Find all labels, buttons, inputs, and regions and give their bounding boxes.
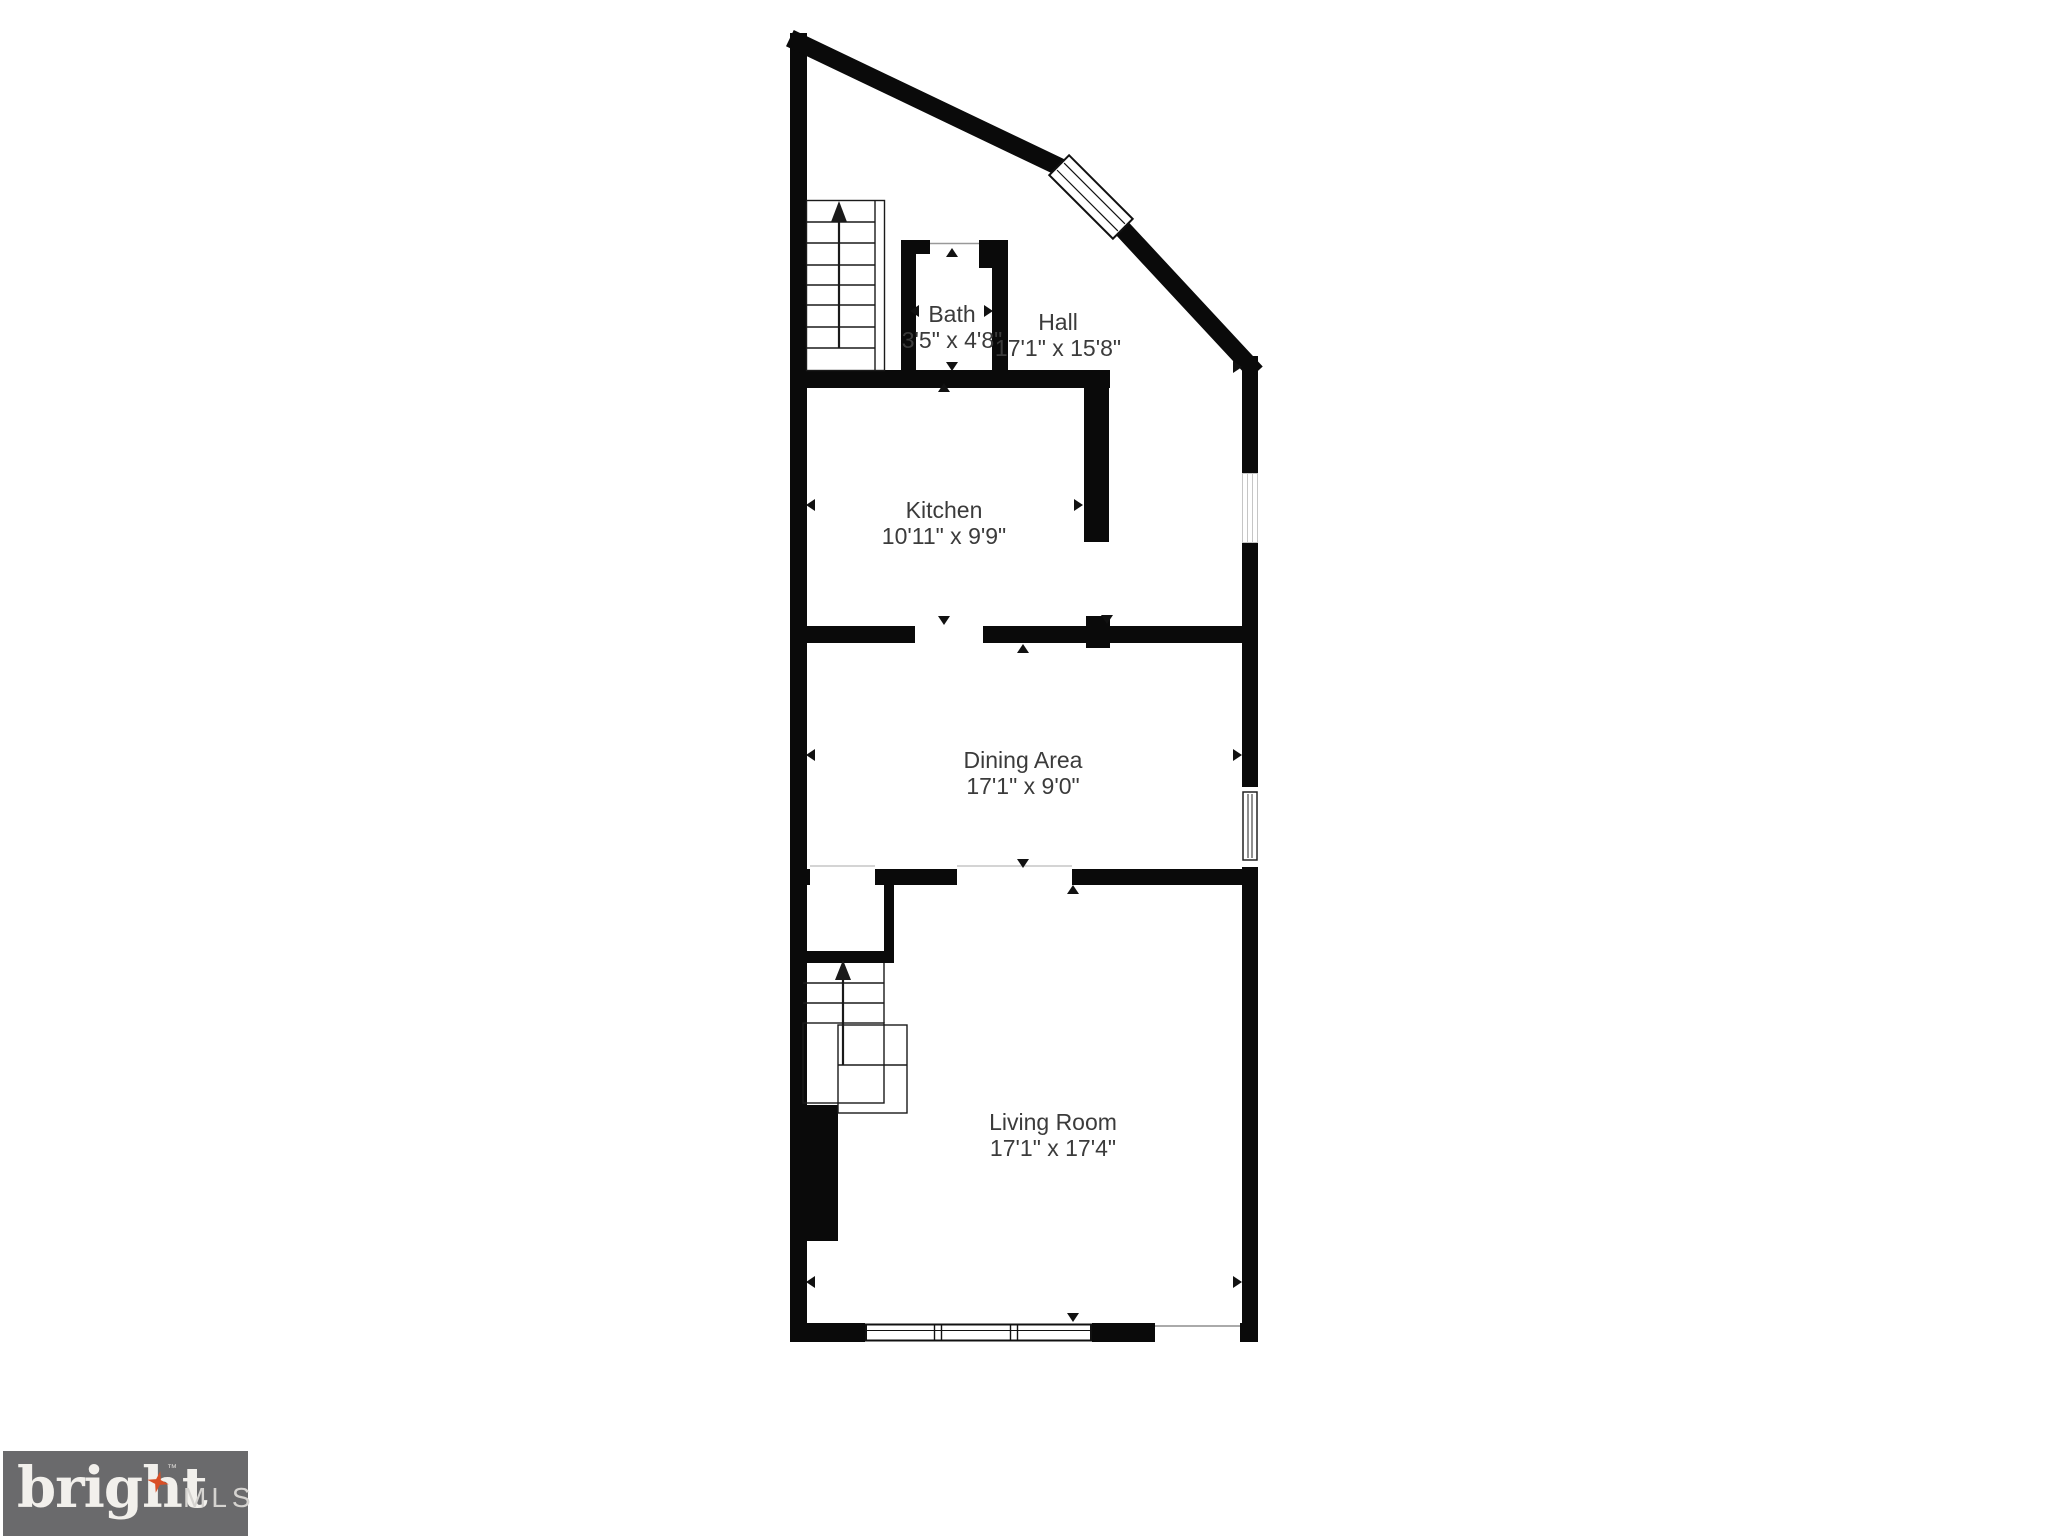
room-dimensions: 3'5" x 4'8"	[902, 327, 1003, 353]
room-name: Hall	[1038, 309, 1078, 335]
dimension-arrow-icon	[1074, 499, 1083, 511]
room-label-hall: Hall 17'1" x 15'8"	[995, 309, 1121, 361]
dimension-arrow-icon	[1017, 644, 1029, 653]
dimension-arrow-icon	[806, 499, 815, 511]
room-name: Bath	[928, 301, 975, 327]
upper-staircase	[806, 200, 885, 371]
diagonal-window	[1049, 155, 1132, 238]
room-label-dining-area: Dining Area 17'1" x 9'0"	[964, 747, 1083, 799]
room-name: Living Room	[989, 1109, 1117, 1135]
dimension-arrow-icon	[1067, 885, 1079, 894]
room-label-kitchen: Kitchen 10'11" x 9'9"	[882, 497, 1006, 549]
trademark-symbol: ™	[167, 1463, 177, 1474]
room-dimensions: 17'1" x 17'4"	[990, 1135, 1116, 1161]
dimension-arrow-icon	[938, 616, 950, 625]
dimension-arrow-icon	[946, 248, 958, 257]
dimension-arrow-icon	[946, 362, 958, 371]
dimension-arrow-icon	[1233, 749, 1242, 761]
kitchen-window	[1242, 473, 1258, 543]
dimension-arrow-icon	[1017, 859, 1029, 868]
dimension-arrow-icon	[806, 749, 815, 761]
room-label-living-room: Living Room 17'1" x 17'4"	[989, 1109, 1117, 1161]
room-name: Dining Area	[964, 747, 1083, 773]
dimension-arrow-icon	[984, 305, 993, 317]
dimension-arrow-icon	[1233, 1276, 1242, 1288]
floor-plan-page: Bath 3'5" x 4'8" Hall 17'1" x 15'8" Kitc…	[0, 0, 2048, 1536]
living-room-triple-window	[865, 1323, 1092, 1342]
dimension-arrow-icon	[806, 1276, 815, 1288]
room-dimensions: 17'1" x 9'0"	[966, 773, 1079, 799]
stairs-up-arrow-icon	[831, 201, 847, 222]
chimney-block	[790, 1105, 838, 1241]
room-name: Kitchen	[906, 497, 983, 523]
dining-window	[1242, 787, 1258, 867]
brightmls-logo: bright ™ MLS	[3, 1451, 248, 1536]
dimension-arrow-icon	[1067, 1313, 1079, 1322]
room-dimensions: 17'1" x 15'8"	[995, 335, 1121, 361]
lower-staircase	[803, 960, 907, 1113]
logo-wordmark: bright	[17, 1455, 207, 1521]
floor-plan: Bath 3'5" x 4'8" Hall 17'1" x 15'8" Kitc…	[0, 0, 2048, 1536]
room-dimensions: 10'11" x 9'9"	[882, 523, 1006, 549]
logo-mls-text: MLS	[183, 1482, 256, 1514]
